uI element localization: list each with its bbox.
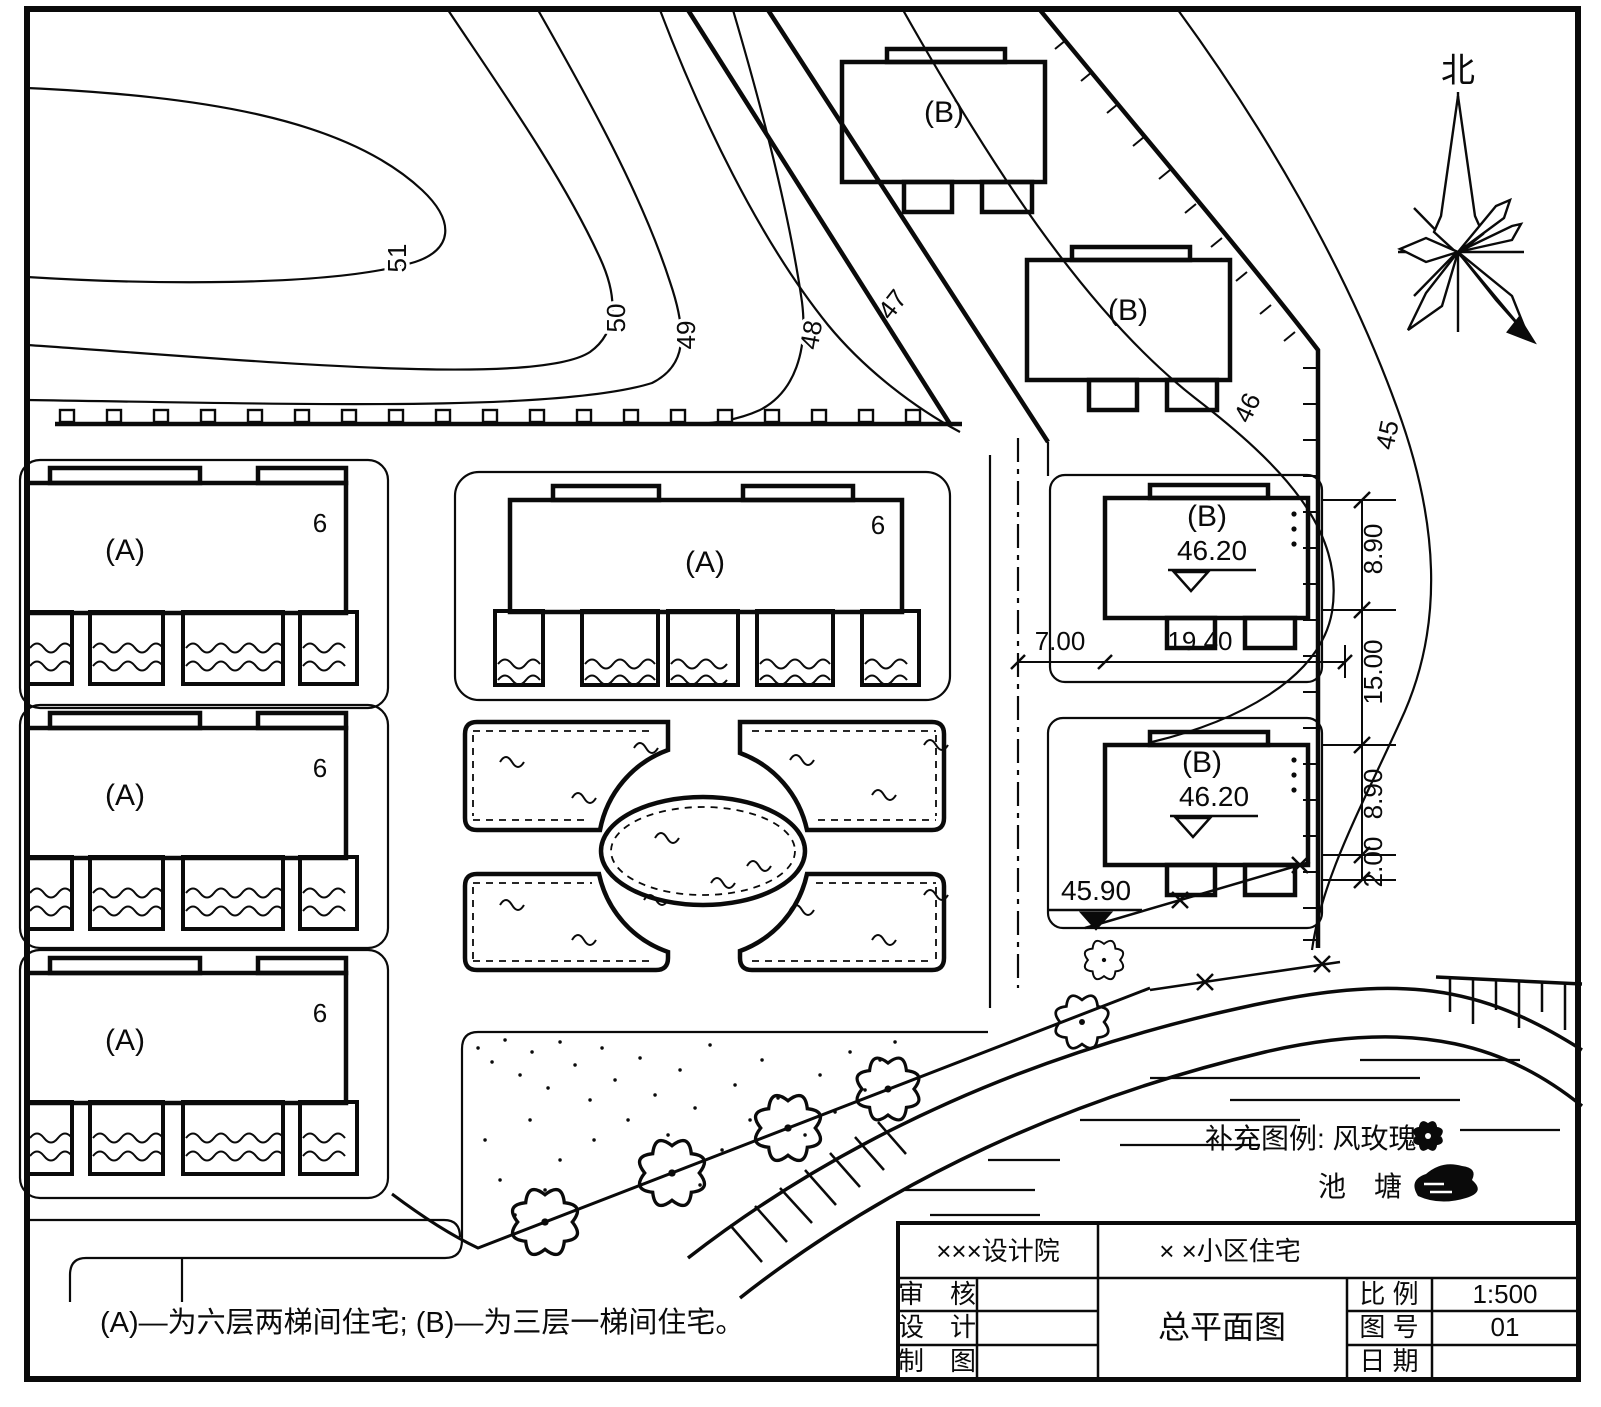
label-a4: (A)	[685, 546, 725, 579]
shrub-icon	[1085, 941, 1123, 979]
contour-label-45: 45	[1369, 418, 1404, 453]
label-a2: (A)	[105, 779, 145, 812]
building-labels: (A) (A) (A) (A) (B) (B) (B) (B) 6 6 6 6	[105, 96, 1227, 1057]
legend-line2: 池 塘	[1318, 1171, 1402, 1202]
wind-rose-flower-center	[1425, 1133, 1431, 1139]
tb-draft-label: 制 图	[898, 1346, 976, 1376]
tb-review-label: 审 核	[898, 1279, 976, 1309]
label-b4: (B)	[1182, 746, 1222, 779]
embankment-ticks	[1450, 979, 1578, 1030]
tb-date-label: 日 期	[1359, 1346, 1418, 1376]
tb-design-label: 设 计	[898, 1312, 976, 1342]
b-dots	[1291, 511, 1296, 792]
contour-label-48: 48	[794, 318, 829, 352]
tree-icon	[640, 1141, 705, 1206]
contour-label-51: 51	[382, 244, 412, 273]
dim-8-90-b: 8.90	[1358, 769, 1388, 820]
title-block: ×××设计院 × ×小区住宅 审 核 设 计 制 图 总平面图 比 例 1:50…	[898, 1223, 1578, 1379]
site-plan-drawing: 51 50 49 48 47 46 45	[0, 0, 1601, 1407]
garden	[465, 722, 948, 970]
contour-label-49: 49	[671, 321, 701, 350]
note-text: (A)—为六层两梯间住宅; (B)—为三层一梯间住宅。	[100, 1306, 744, 1339]
contour-label-50: 50	[601, 304, 631, 333]
dim-15-00: 15.00	[1358, 639, 1388, 704]
wind-rose-icon	[1398, 92, 1534, 342]
north-label: 北	[1441, 52, 1475, 90]
site-plan-page: 51 50 49 48 47 46 45	[0, 0, 1601, 1407]
contour-label-47: 47	[871, 284, 912, 325]
tb-drawing-title: 总平面图	[1158, 1309, 1286, 1345]
elevation-b-lower: 46.20	[1179, 781, 1249, 812]
floors-3: 6	[313, 998, 327, 1028]
pond-icon	[1414, 1164, 1477, 1201]
tb-scale-label: 比 例	[1359, 1279, 1418, 1309]
label-b1: (B)	[924, 96, 964, 129]
tb-project: × ×小区住宅	[1159, 1236, 1301, 1266]
tb-sheet-label: 图 号	[1359, 1312, 1418, 1342]
embankment-line	[1436, 977, 1582, 984]
contour-label-46: 46	[1227, 388, 1266, 427]
tree-icon	[756, 1096, 821, 1161]
dim-7-00: 7.00	[1035, 626, 1086, 656]
tb-sheet-value: 01	[1491, 1312, 1520, 1342]
label-a1: (A)	[105, 534, 145, 567]
buildings-type-a-left	[27, 468, 357, 1174]
label-b2: (B)	[1108, 294, 1148, 327]
sand-stipple	[478, 1040, 895, 1215]
dim-8-90-a: 8.90	[1358, 524, 1388, 575]
diagonal-roads	[688, 10, 1048, 442]
tb-scale-value: 1:500	[1472, 1279, 1537, 1309]
floors-2: 6	[313, 753, 327, 783]
elevation-b-upper: 46.20	[1177, 535, 1247, 566]
tb-company: ×××设计院	[936, 1236, 1060, 1266]
label-b3: (B)	[1187, 500, 1227, 533]
dim-2-00: 2.00	[1358, 837, 1388, 888]
tree-row	[392, 941, 1150, 1255]
label-a3: (A)	[105, 1024, 145, 1057]
legend: 补充图例: 风玫瑰 池 塘	[1205, 1122, 1478, 1202]
road-edges	[20, 438, 1322, 1198]
shore-upper-edge	[688, 988, 1582, 1258]
tree-icon	[513, 1190, 578, 1255]
floors-1: 6	[313, 508, 327, 538]
dim-19-40: 19.40	[1167, 626, 1232, 656]
floors-4: 6	[871, 510, 885, 540]
building-type-a-middle	[495, 486, 919, 685]
legend-line1: 补充图例: 风玫瑰	[1205, 1123, 1417, 1154]
fence-line	[55, 410, 962, 424]
grass-tufts	[500, 740, 948, 945]
elevation-road: 45.90	[1061, 875, 1131, 906]
dimension-chain-right: 8.90 15.00 8.90 2.00	[1322, 492, 1396, 888]
